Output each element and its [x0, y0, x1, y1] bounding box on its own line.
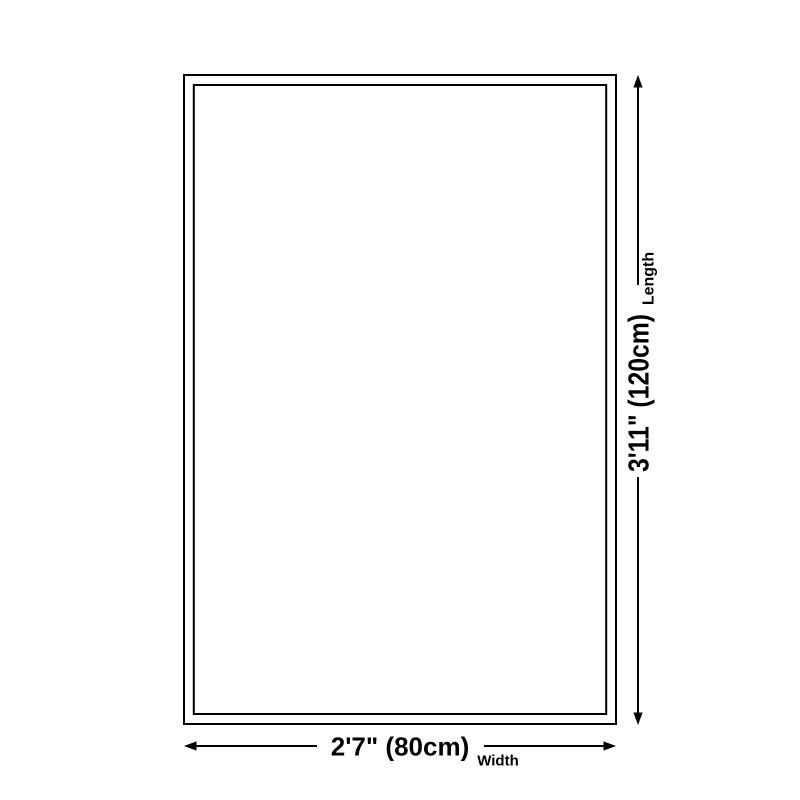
- svg-text:Length: Length: [641, 252, 658, 305]
- svg-text:Width: Width: [477, 753, 519, 770]
- svg-text:2'7" (80cm): 2'7" (80cm): [331, 732, 469, 762]
- svg-text:3'11" (120cm): 3'11" (120cm): [624, 314, 656, 472]
